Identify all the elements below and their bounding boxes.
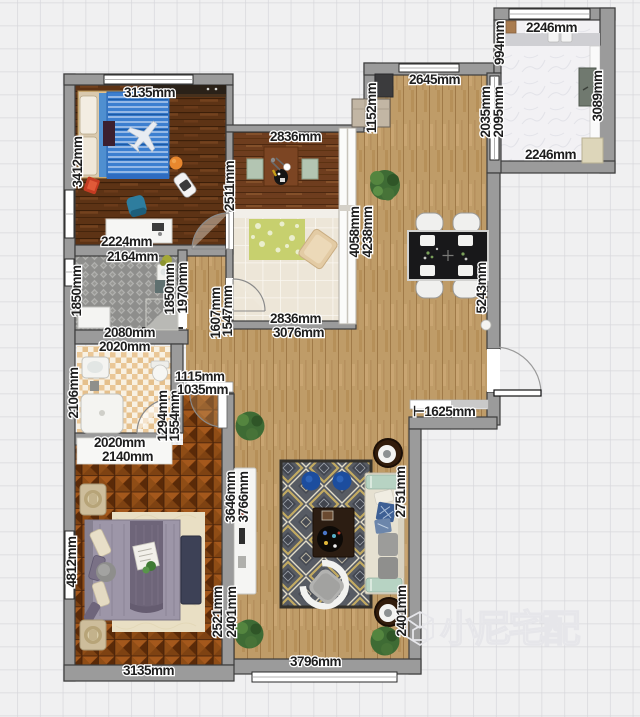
svg-text:2645mm: 2645mm bbox=[409, 72, 461, 87]
svg-text:2224mm: 2224mm bbox=[101, 234, 153, 249]
svg-text:1547mm: 1547mm bbox=[220, 285, 235, 337]
svg-text:2020mm: 2020mm bbox=[99, 339, 151, 354]
svg-text:4238mm: 4238mm bbox=[360, 206, 375, 258]
svg-text:3412mm: 3412mm bbox=[70, 136, 85, 188]
svg-text:2751mm: 2751mm bbox=[393, 466, 408, 518]
svg-text:1850mm: 1850mm bbox=[69, 265, 84, 317]
svg-text:3796mm: 3796mm bbox=[290, 654, 342, 669]
svg-text:3089mm: 3089mm bbox=[590, 70, 605, 122]
svg-text:5243mm: 5243mm bbox=[474, 262, 489, 314]
svg-text:3076mm: 3076mm bbox=[273, 325, 325, 340]
svg-text:2095mm: 2095mm bbox=[491, 86, 506, 138]
svg-text:2246mm: 2246mm bbox=[526, 20, 578, 35]
svg-text:2246mm: 2246mm bbox=[525, 147, 577, 162]
svg-text:994mm: 994mm bbox=[492, 20, 507, 65]
svg-text:3135mm: 3135mm bbox=[124, 85, 176, 100]
svg-text:1035mm: 1035mm bbox=[177, 382, 229, 397]
svg-text:1152mm: 1152mm bbox=[364, 82, 379, 133]
svg-text:2836mm: 2836mm bbox=[270, 311, 322, 326]
svg-text:⊢1625mm: ⊢1625mm bbox=[413, 404, 476, 419]
svg-text:2020mm: 2020mm bbox=[94, 435, 146, 450]
svg-text:1970mm: 1970mm bbox=[175, 262, 190, 314]
svg-text:3766mm: 3766mm bbox=[236, 471, 251, 523]
svg-text:3135mm: 3135mm bbox=[123, 663, 175, 678]
svg-text:2511mm: 2511mm bbox=[222, 160, 237, 211]
svg-text:2106mm: 2106mm bbox=[66, 367, 81, 419]
svg-text:2164mm: 2164mm bbox=[107, 249, 159, 264]
svg-text:2836mm: 2836mm bbox=[270, 129, 322, 144]
svg-text:2521mm: 2521mm bbox=[210, 586, 225, 638]
svg-text:2080mm: 2080mm bbox=[104, 325, 156, 340]
svg-text:小尼宅配: 小尼宅配 bbox=[440, 608, 580, 651]
svg-text:4812mm: 4812mm bbox=[64, 536, 79, 588]
svg-text:2401mm: 2401mm bbox=[224, 586, 239, 638]
svg-text:2140mm: 2140mm bbox=[102, 449, 154, 464]
svg-text:1554mm: 1554mm bbox=[167, 390, 182, 442]
